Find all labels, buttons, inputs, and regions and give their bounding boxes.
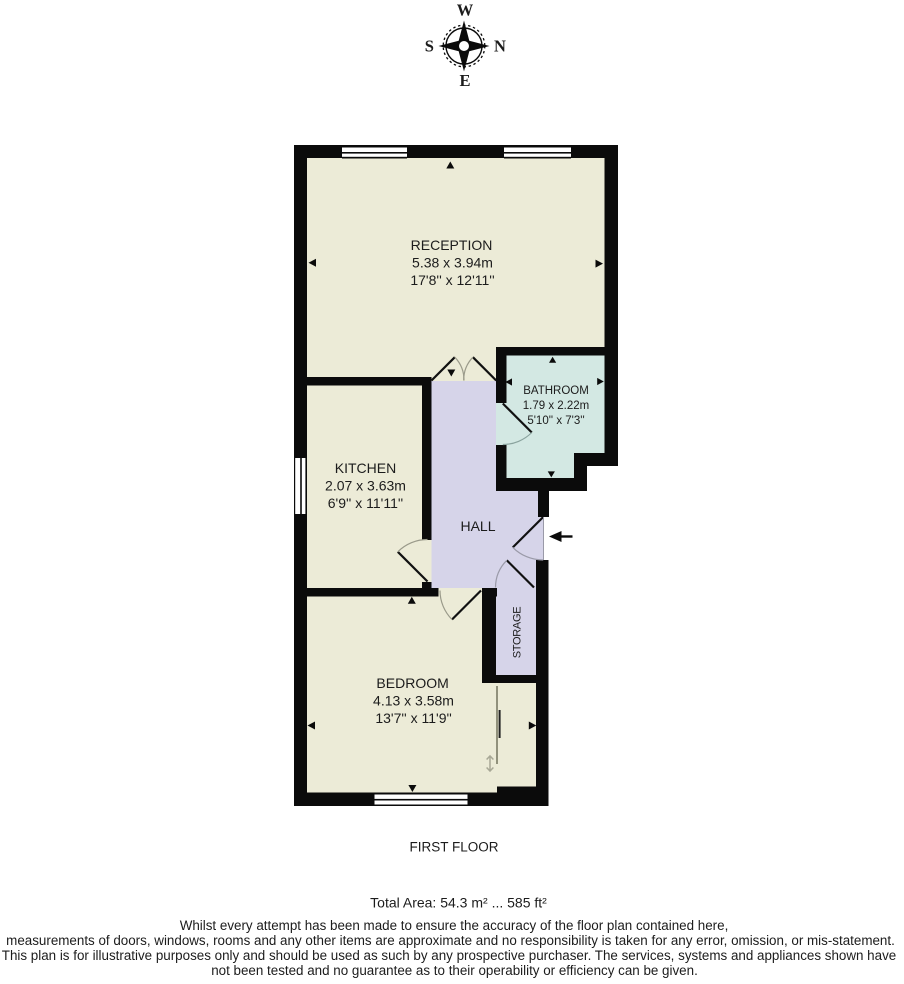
svg-text:1.79 x 2.22m: 1.79 x 2.22m <box>523 400 589 412</box>
svg-text:S: S <box>425 37 434 56</box>
svg-text:HALL: HALL <box>460 518 495 534</box>
svg-text:measurements of doors, windows: measurements of doors, windows, rooms an… <box>6 933 895 948</box>
svg-text:4.13 x 3.58m: 4.13 x 3.58m <box>373 693 454 709</box>
svg-text:N: N <box>494 37 506 56</box>
svg-text:RECEPTION: RECEPTION <box>411 237 493 253</box>
svg-text:E: E <box>459 71 470 90</box>
svg-text:5'10'' x 7'3'': 5'10'' x 7'3'' <box>527 415 584 427</box>
svg-text:6'9'' x 11'11'': 6'9'' x 11'11'' <box>328 495 403 511</box>
svg-text:17'8'' x 12'11'': 17'8'' x 12'11'' <box>410 272 494 288</box>
svg-text:BATHROOM: BATHROOM <box>523 385 589 397</box>
svg-text:2.07 x 3.63m: 2.07 x 3.63m <box>325 478 406 494</box>
svg-text:BEDROOM: BEDROOM <box>376 675 448 691</box>
svg-text:This plan is for illustrative: This plan is for illustrative purposes o… <box>2 948 896 963</box>
svg-text:FIRST FLOOR: FIRST FLOOR <box>409 840 498 855</box>
svg-text:STORAGE: STORAGE <box>512 607 524 659</box>
svg-text:Total Area: 54.3 m² ... 585 ft: Total Area: 54.3 m² ... 585 ft² <box>370 895 547 911</box>
svg-text:W: W <box>457 1 474 20</box>
svg-text:13'7'' x 11'9'': 13'7'' x 11'9'' <box>375 710 452 726</box>
svg-text:not been tested and no guarant: not been tested and no guarantee as to t… <box>211 963 698 978</box>
svg-text:Whilst every attempt has been: Whilst every attempt has been made to en… <box>180 918 729 933</box>
svg-text:5.38 x 3.94m: 5.38 x 3.94m <box>412 255 493 271</box>
svg-text:KITCHEN: KITCHEN <box>335 460 396 476</box>
